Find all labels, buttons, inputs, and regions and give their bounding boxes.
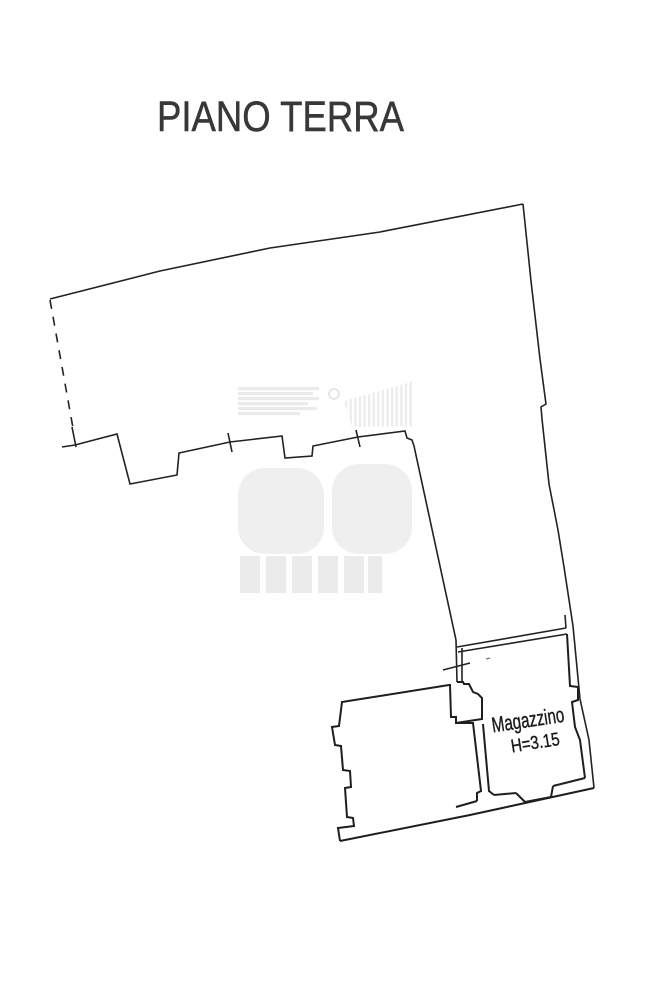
svg-text:PIANO TERRA: PIANO TERRA (157, 94, 405, 141)
